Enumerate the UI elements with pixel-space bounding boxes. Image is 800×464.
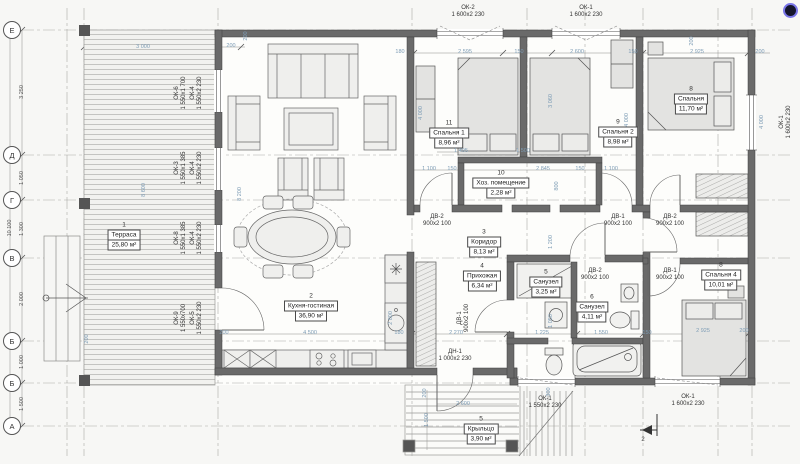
door-tag-size: 900x2 100 <box>423 221 451 228</box>
room-number: 8 <box>701 262 741 269</box>
dimension-label: 1 100 <box>604 166 618 172</box>
room-name: Спальня 2 <box>598 127 638 138</box>
window-tag-code: ОК-5 <box>190 301 197 334</box>
window-tag-code: ОК-1 <box>528 396 561 403</box>
window-tag-size: 1 550x1 700 <box>181 76 188 109</box>
overlay-badge[interactable] <box>783 3 798 18</box>
window-tag: ОК-41 550x2 230 <box>190 76 204 109</box>
room-label: 5Санузел3,25 м² <box>529 269 562 298</box>
axis-dimension: 1 000 <box>19 355 25 369</box>
room-label: 1Терраса25,80 м² <box>108 222 141 251</box>
dimension-label: 1 500 <box>516 148 530 154</box>
room-number: 5 <box>529 269 562 276</box>
window-tag-size: 1 600x2 230 <box>569 12 602 19</box>
door-tag: ДВ-1900x2 100 <box>656 268 684 282</box>
dimension-label: 200 <box>84 334 90 343</box>
room-number: 11 <box>429 120 469 127</box>
room-name: Спальня <box>674 94 708 105</box>
dimension-label: 200 <box>219 330 228 336</box>
dimension-label: 4 000 <box>759 115 765 129</box>
dimension-label: 8 600 <box>141 183 147 197</box>
window-tag-size: 1 550x1 385 <box>181 151 188 184</box>
window-tag: ДН-11 000x2 230 <box>438 349 471 363</box>
window-tag-size: 1 600x2 230 <box>786 105 793 138</box>
dimension-label: 2 925 <box>696 328 710 334</box>
dimension-label: 200 <box>739 328 748 334</box>
window-tag: ОК-11 600x2 230 <box>779 105 793 138</box>
axis-total-dimension: 10 100 <box>7 220 13 237</box>
room-name: Терраса <box>108 230 141 241</box>
dimension-label: 150 <box>447 166 456 172</box>
room-area: 2,28 м² <box>486 188 515 199</box>
door-tag-size: 900x2 100 <box>464 304 471 332</box>
door-tag-code: ДВ-1 <box>604 214 632 221</box>
dimension-label: 1 050 <box>548 314 554 328</box>
dimension-label: 150 <box>514 49 523 55</box>
room-label: 4Прихожая6,34 м² <box>463 263 501 292</box>
door-tag-code: ДВ-2 <box>581 268 609 275</box>
dimension-label: 2 600 <box>570 49 584 55</box>
room-label: 6Санузел4,11 м² <box>575 294 608 323</box>
room-area: 6,34 м² <box>467 281 496 292</box>
dimension-label: 200 <box>243 31 249 40</box>
room-name: Прихожая <box>463 271 501 282</box>
dimension-label: 8 200 <box>237 187 243 201</box>
door-tag: ДВ-2900x2 100 <box>656 214 684 228</box>
window-tag: ОК-11 600x2 230 <box>671 394 704 408</box>
room-number: 4 <box>463 263 501 270</box>
axis-dimension: 3 250 <box>19 85 25 99</box>
dimension-label: 800 <box>554 181 560 190</box>
dimension-label: 4 000 <box>418 106 424 120</box>
dimension-label: 1 500 <box>424 413 430 427</box>
window-tag-code: ОК-1 <box>671 394 704 401</box>
axis-bubble-Б: Б <box>3 374 21 392</box>
dimension-label: 200 <box>689 36 695 45</box>
dimension-label: 2 270 <box>449 330 463 336</box>
room-name: Спальня 4 <box>701 270 741 281</box>
window-tag-size: 1 550x1 385 <box>181 221 188 254</box>
room-area: 8,98 м² <box>603 137 632 148</box>
window-tag-code: ДН-1 <box>438 349 471 356</box>
room-name: Крыльцо <box>464 424 499 435</box>
window-tag-size: 1 550x2 230 <box>197 221 204 254</box>
door-tag: ДВ-1900x2 100 <box>604 214 632 228</box>
dimension-label: 1 100 <box>422 166 436 172</box>
window-tag: ОК-51 550x2 230 <box>190 301 204 334</box>
dimension-label: 3 000 <box>136 44 150 50</box>
window-tag-size: 1 000x2 230 <box>438 356 471 363</box>
window-tag-size: 1 550x2 230 <box>528 403 561 410</box>
room-area: 25,80 м² <box>108 240 141 251</box>
room-label: 9Спальня 28,98 м² <box>598 119 638 148</box>
dimension-label: 1 225 <box>535 330 549 336</box>
room-number: 2 <box>284 293 338 300</box>
room-name: Хоз. помещение <box>472 178 529 189</box>
door-tag-size: 900x2 100 <box>604 221 632 228</box>
window-tag-code: ОК-4 <box>190 221 197 254</box>
dimension-label: 3 060 <box>548 94 554 108</box>
window-tag-size: 1 550x2 230 <box>197 301 204 334</box>
section-marker-label: 2 <box>641 437 644 443</box>
dimension-label: 1 200 <box>548 235 554 249</box>
dimension-label: 200 <box>226 43 235 49</box>
room-label: 11Спальня 18,96 м² <box>429 120 469 149</box>
window-tag: ОК-81 550x1 385 <box>174 221 188 254</box>
dimension-label: 150 <box>575 166 584 172</box>
dimension-label: 200 <box>422 388 428 397</box>
dimension-label: 150 <box>642 330 651 336</box>
room-name: Санузел <box>575 302 608 313</box>
axis-dimension: 1 300 <box>19 222 25 236</box>
floor-plan-canvas: ЕДГВББА3 2501 0501 3002 0001 0001 50010 … <box>0 0 800 464</box>
room-area: 11,70 м² <box>675 104 707 115</box>
room-label: 2Кухня-гостиная36,90 м² <box>284 293 338 322</box>
axis-dimension: 2 000 <box>19 292 25 306</box>
dimension-label: 300 <box>546 387 552 396</box>
door-tag-size: 900x2 100 <box>656 275 684 282</box>
window-tag: ОК-21 600x2 230 <box>451 5 484 19</box>
window-tag-code: ОК-8 <box>174 221 181 254</box>
window-tag-code: ОК-1 <box>569 5 602 12</box>
room-area: 8,13 м² <box>469 247 498 258</box>
room-area: 3,90 м² <box>466 434 495 445</box>
window-tag-code: ОК-2 <box>451 5 484 12</box>
room-number: 5 <box>464 416 499 423</box>
room-number: 3 <box>467 229 501 236</box>
room-label: 5Крыльцо3,90 м² <box>464 416 499 445</box>
axis-bubble-Е: Е <box>3 21 21 39</box>
door-tag-code: ДВ-2 <box>656 214 684 221</box>
window-tag: ОК-11 550x2 230 <box>528 396 561 410</box>
window-tag-size: 1 550x2 230 <box>197 151 204 184</box>
room-label: 10Хоз. помещение2,28 м² <box>472 170 529 199</box>
axis-dimension: 1 500 <box>19 397 25 411</box>
room-number: 8 <box>674 86 708 93</box>
room-name: Спальня 1 <box>429 128 469 139</box>
dimension-label: 2 600 <box>456 401 470 407</box>
dimension-label: 1 550 <box>594 330 608 336</box>
window-tag-code: ОК-1 <box>779 105 786 138</box>
window-tag: ОК-11 600x2 230 <box>569 5 602 19</box>
labels-layer: ЕДГВББА3 2501 0501 3002 0001 0001 50010 … <box>0 0 800 464</box>
window-tag: ОК-41 550x2 230 <box>190 221 204 254</box>
room-label: 8Спальня11,70 м² <box>674 86 708 115</box>
axis-dimension: 1 050 <box>19 171 25 185</box>
window-tag-code: ОК-9 <box>174 304 181 332</box>
room-label: 3Коридор8,13 м² <box>467 229 501 258</box>
room-name: Коридор <box>467 237 501 248</box>
dimension-label: 2 800 <box>388 311 394 325</box>
window-tag: ОК-41 550x2 230 <box>190 151 204 184</box>
window-tag: ОК-91 550x700 <box>174 304 188 332</box>
door-tag-size: 900x2 100 <box>581 275 609 282</box>
axis-bubble-Б: Б <box>3 332 21 350</box>
dimension-label: 150 <box>628 49 637 55</box>
dimension-label: 1 495 <box>454 148 468 154</box>
room-area: 8,96 м² <box>434 138 463 149</box>
room-area: 36,90 м² <box>295 311 328 322</box>
room-area: 10,01 м² <box>705 280 738 291</box>
room-area: 4,11 м² <box>578 312 607 323</box>
window-tag-size: 1 550x700 <box>181 304 188 332</box>
window-tag-code: ОК-6 <box>174 76 181 109</box>
room-number: 6 <box>575 294 608 301</box>
door-tag-code: ДВ-1 <box>457 304 464 332</box>
dimension-label: 2 595 <box>458 49 472 55</box>
dimension-label: 4 000 <box>624 113 630 127</box>
window-tag-code: ОК-3 <box>174 151 181 184</box>
room-number: 9 <box>598 119 638 126</box>
axis-bubble-А: А <box>3 417 21 435</box>
room-area: 3,25 м² <box>531 287 560 298</box>
window-tag-code: ОК-4 <box>190 76 197 109</box>
dimension-label: 2 925 <box>690 49 704 55</box>
room-number: 10 <box>472 170 529 177</box>
window-tag: ОК-31 550x1 385 <box>174 151 188 184</box>
window-tag-size: 1 550x2 230 <box>197 76 204 109</box>
window-tag: ОК-61 550x1 700 <box>174 76 188 109</box>
room-number: 1 <box>108 222 141 229</box>
window-tag-size: 1 600x2 230 <box>451 12 484 19</box>
window-tag-code: ОК-4 <box>190 151 197 184</box>
door-tag: ДВ-2900x2 100 <box>581 268 609 282</box>
room-name: Санузел <box>529 277 562 288</box>
room-name: Кухня-гостиная <box>284 301 338 312</box>
door-tag: ДВ-2900x2 100 <box>423 214 451 228</box>
door-tag-code: ДВ-1 <box>656 268 684 275</box>
window-tag-size: 1 600x2 230 <box>671 401 704 408</box>
dimension-label: 200 <box>755 49 764 55</box>
dimension-label: 180 <box>395 49 404 55</box>
door-tag: ДВ-1900x2 100 <box>457 304 471 332</box>
door-tag-size: 900x2 100 <box>656 221 684 228</box>
door-tag-code: ДВ-2 <box>423 214 451 221</box>
axis-bubble-Г: Г <box>3 191 21 209</box>
dimension-label: 2 845 <box>536 166 550 172</box>
axis-bubble-Д: Д <box>3 146 21 164</box>
room-label: 8Спальня 410,01 м² <box>701 262 741 291</box>
axis-bubble-В: В <box>3 249 21 267</box>
dimension-label: 4 500 <box>303 330 317 336</box>
dimension-label: 180 <box>394 330 403 336</box>
